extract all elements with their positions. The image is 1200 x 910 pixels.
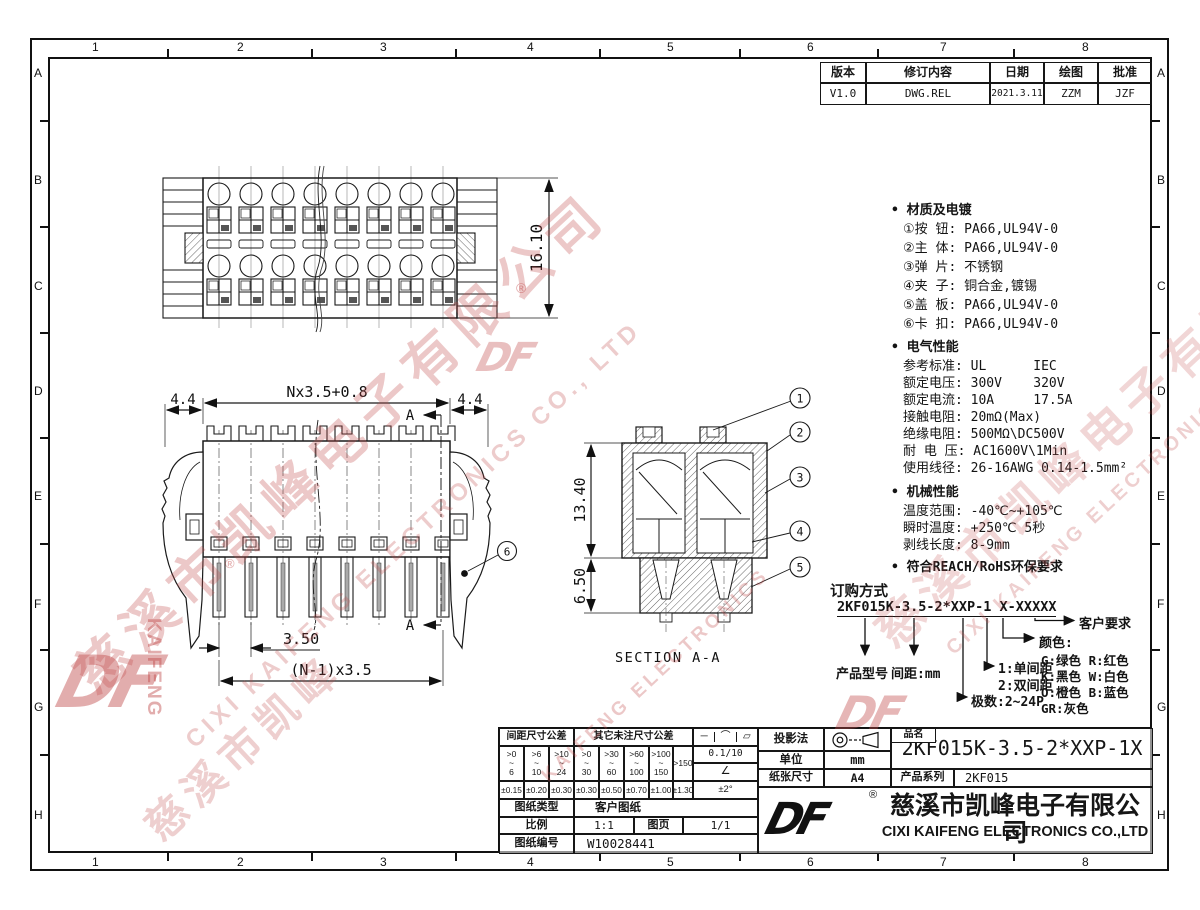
material-item: ⑥卡 扣: PA66,UL94V-0 xyxy=(903,313,1058,332)
title-block: 间距尺寸公差 其它未注尺寸公差 ─ ⌒ ▱ >0 ~ 6 >6 ~ 10 >10… xyxy=(498,727,1152,853)
drawing-number-label: 图纸编号 xyxy=(499,834,574,854)
compliance-note: • 符合REACH/RoHS环保要求 xyxy=(891,556,1063,575)
tolerance-range: >10 ~ 24 xyxy=(549,746,574,781)
drawing-type-label: 图纸类型 xyxy=(499,799,574,817)
revision-header: 日期 xyxy=(990,62,1044,83)
first-angle-projection-icon xyxy=(828,730,888,750)
paper-size-value: A4 xyxy=(824,769,891,787)
revision-approved-by: JZF xyxy=(1098,83,1152,105)
revision-table: 版本 修订内容 日期 绘图 批准 V1.0 DWG.REL 2021.3.11 … xyxy=(820,62,1152,105)
tolerance-other-title: 其它未注尺寸公差 xyxy=(574,728,693,746)
material-item: ⑤盖 板: PA66,UL94V-0 xyxy=(903,294,1058,313)
tolerance-pitch-title: 间距尺寸公差 xyxy=(499,728,574,746)
tolerance-range: >100 ~ 150 xyxy=(649,746,673,781)
angle-tolerance: ±2° xyxy=(693,781,758,799)
mechanical-item: 剥线长度: 8-9mm xyxy=(903,534,1010,553)
electrical-title: • 电气性能 xyxy=(891,336,959,355)
arc-icon: ⌒ xyxy=(715,732,736,743)
zone-row: D xyxy=(34,384,43,398)
tolerance-value: ±0.30 xyxy=(549,781,574,799)
dim-span-label: (N-1)x3.5 xyxy=(290,661,371,679)
callout-1: 1 xyxy=(797,392,804,406)
zone-col: 7 xyxy=(940,40,947,54)
zone-col: 1 xyxy=(92,40,99,54)
tolerance-range: >30 ~ 60 xyxy=(599,746,624,781)
company-name-en: CIXI KAIFENG ELECTRONICS CO.,LTD xyxy=(879,825,1151,841)
lever-left xyxy=(162,452,203,648)
zone-row: G xyxy=(34,700,43,714)
revision-header: 修订内容 xyxy=(866,62,990,83)
zone-row: E xyxy=(1157,489,1165,503)
section-view: 1 2 3 4 5 13.40 6.50 SECTION A-A xyxy=(571,388,810,666)
series-label: 产品系列 xyxy=(891,769,954,787)
zone-row: A xyxy=(34,66,42,80)
zone-col: 7 xyxy=(940,855,947,869)
company-block: DF ® 慈溪市凯峰电子有限公司 CIXI KAIFENG ELECTRONIC… xyxy=(758,787,1153,854)
tolerance-value: ±0.15 xyxy=(499,781,524,799)
zone-row: C xyxy=(34,279,43,293)
tolerance-range: >0 ~ 30 xyxy=(574,746,599,781)
tolerance-range: >0 ~ 6 xyxy=(499,746,524,781)
dim-right-label: 4.4 xyxy=(457,392,482,408)
tolerance-value: ±0.70 xyxy=(624,781,649,799)
tolerance-range-last: >150 xyxy=(673,746,693,781)
tolerance-range: >6 ~ 10 xyxy=(524,746,549,781)
drawing-views: 16.10 xyxy=(50,115,880,730)
flatness-tolerance: 0.1/10 xyxy=(693,746,758,763)
material-item: ④夹 子: 铜合金,镀锡 xyxy=(903,275,1037,294)
zone-row: B xyxy=(1157,173,1165,187)
zone-row: H xyxy=(1157,808,1166,822)
section-title: SECTION A-A xyxy=(615,650,721,666)
tolerance-value: ±0.30 xyxy=(574,781,599,799)
zone-row: F xyxy=(34,597,41,611)
zone-col: 5 xyxy=(667,40,674,54)
zone-col: 6 xyxy=(807,855,814,869)
dim-sec-lower-label: 6.50 xyxy=(571,568,589,604)
zone-col: 2 xyxy=(237,855,244,869)
material-item: ③弹 片: 不锈钢 xyxy=(903,256,1003,275)
mechanical-title: • 机械性能 xyxy=(891,481,959,500)
geometry-symbols: ─ ⌒ ▱ xyxy=(693,728,758,746)
section-marker-top: A xyxy=(406,408,415,424)
tolerance-value: ±1.30 xyxy=(673,781,693,799)
zone-col: 4 xyxy=(527,855,534,869)
drawing-sheet: 1 2 3 4 5 6 7 8 1 2 3 4 5 6 7 8 A B C D … xyxy=(0,0,1200,910)
paper-size-label: 纸张尺寸 xyxy=(758,769,824,787)
material-title: • 材质及电镀 xyxy=(891,199,972,218)
dim-pitch-label: 3.50 xyxy=(283,630,319,648)
section-marker-bottom: A xyxy=(406,618,415,634)
scale-value: 1:1 xyxy=(574,817,634,834)
drawing-type-value: 客户图纸 xyxy=(574,799,758,817)
zone-col: 8 xyxy=(1082,40,1089,54)
registered-mark-icon: ® xyxy=(869,790,877,802)
sheet-label: 图页 xyxy=(634,817,683,834)
lever-right xyxy=(450,452,491,648)
zone-col: 3 xyxy=(380,855,387,869)
zone-row: C xyxy=(1157,279,1166,293)
revision-header: 批准 xyxy=(1098,62,1152,83)
dim-height-label: 16.10 xyxy=(527,224,546,272)
revision-header: 版本 xyxy=(820,62,866,83)
projection-symbol xyxy=(824,728,891,751)
unit-label: 单位 xyxy=(758,751,824,769)
material-item: ①按 钮: PA66,UL94V-0 xyxy=(903,218,1058,237)
tolerance-range: >60 ~ 100 xyxy=(624,746,649,781)
callout-2: 2 xyxy=(797,426,804,440)
unit-value: mm xyxy=(824,751,891,769)
zone-col: 1 xyxy=(92,855,99,869)
tolerance-value: ±0.50 xyxy=(599,781,624,799)
callout-4: 4 xyxy=(797,525,804,539)
material-item: ②主 体: PA66,UL94V-0 xyxy=(903,237,1058,256)
straightness-icon: ─ xyxy=(694,732,715,743)
front-view: Nx3.5+0.8 4.4 4.4 A A 6 3.50 xyxy=(162,383,517,686)
angle-icon: ∠ xyxy=(693,763,758,781)
zone-col: 5 xyxy=(667,855,674,869)
projection-label: 投影法 xyxy=(758,728,824,751)
top-view: 16.10 xyxy=(163,166,558,332)
revision-drawn-by: ZZM xyxy=(1044,83,1098,105)
tolerance-value: ±1.00 xyxy=(649,781,673,799)
dim-width-label: Nx3.5+0.8 xyxy=(286,383,367,401)
zone-row: D xyxy=(1157,384,1166,398)
zone-col: 3 xyxy=(380,40,387,54)
zone-row: A xyxy=(1157,66,1165,80)
callout-3: 3 xyxy=(797,471,804,485)
revision-version: V1.0 xyxy=(820,83,866,105)
drawing-number-value: W10028441 xyxy=(574,834,758,854)
zone-col: 2 xyxy=(237,40,244,54)
zone-col: 4 xyxy=(527,40,534,54)
series-value: 2KF015 xyxy=(954,769,1153,787)
sheet-value: 1/1 xyxy=(683,817,758,834)
flatness-icon: ▱ xyxy=(737,732,757,743)
zone-col: 8 xyxy=(1082,855,1089,869)
revision-content: DWG.REL xyxy=(866,83,990,105)
dim-left-label: 4.4 xyxy=(170,392,195,408)
revision-date: 2021.3.11 xyxy=(990,83,1044,105)
scale-label: 比例 xyxy=(499,817,574,834)
electrical-item: 使用线径: 26-16AWG 0.14-1.5mm² xyxy=(903,457,1127,476)
zone-row: H xyxy=(34,808,43,822)
callout-6: 6 xyxy=(504,546,511,559)
company-logo: DF xyxy=(760,794,830,845)
zone-row: B xyxy=(34,173,42,187)
revision-header: 绘图 xyxy=(1044,62,1098,83)
callout-5: 5 xyxy=(797,561,804,575)
zone-col: 6 xyxy=(807,40,814,54)
tolerance-value: ±0.20 xyxy=(524,781,549,799)
dim-sec-upper-label: 13.40 xyxy=(571,477,589,522)
zone-row: E xyxy=(34,489,42,503)
part-name-label: 品名 xyxy=(891,728,936,743)
